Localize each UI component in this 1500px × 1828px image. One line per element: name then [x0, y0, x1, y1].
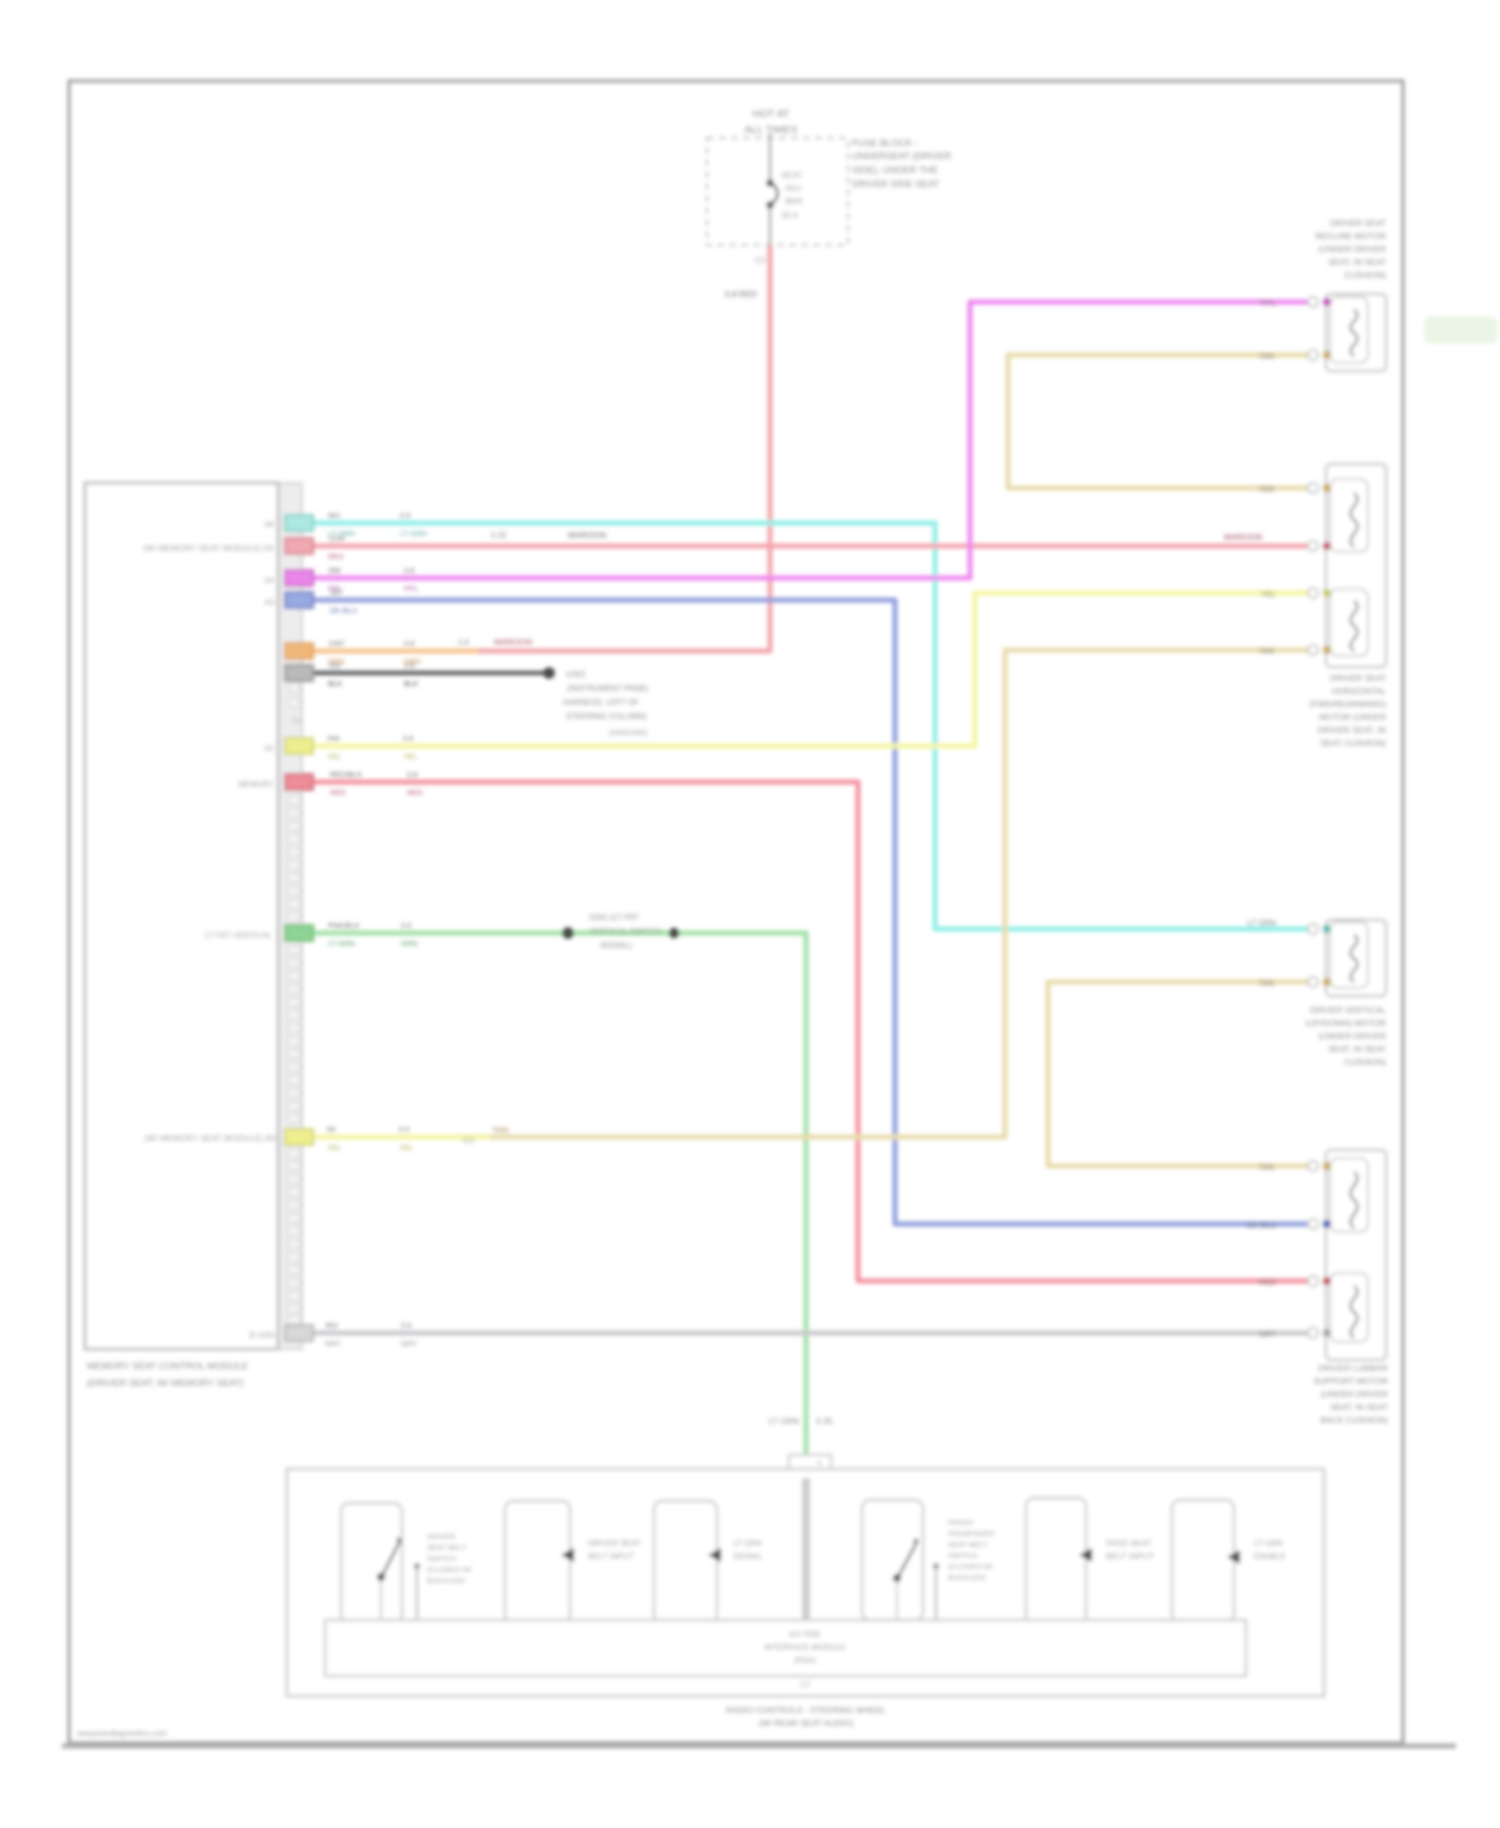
svg-text:941: 941 — [328, 511, 341, 520]
svg-text:A: A — [817, 1460, 822, 1467]
svg-text:TAN: TAN — [1259, 647, 1275, 656]
svg-text:MOTOR (UNDER: MOTOR (UNDER — [1319, 712, 1386, 722]
svg-text:BACK CUSHION): BACK CUSHION) — [1320, 1415, 1388, 1425]
svg-text:TAN: TAN — [1259, 485, 1275, 494]
svg-text:PASS SEAT: PASS SEAT — [1106, 1538, 1152, 1548]
svg-text:DRIVER: DRIVER — [427, 1532, 456, 1541]
svg-text:0.5: 0.5 — [399, 1125, 409, 1134]
svg-text:286: 286 — [328, 566, 341, 575]
svg-text:BELT INPUT: BELT INPUT — [588, 1552, 634, 1561]
svg-text:MAROON: MAROON — [568, 530, 606, 540]
svg-text:0.35: 0.35 — [491, 531, 507, 540]
svg-text:TAN: TAN — [1259, 979, 1275, 988]
svg-text:SWITCH: SWITCH — [948, 1551, 978, 1560]
svg-text:150: 150 — [328, 661, 341, 670]
svg-text:PNK/BLK: PNK/BLK — [328, 921, 360, 930]
svg-text:(UP/DOWN) MOTOR: (UP/DOWN) MOTOR — [1305, 1018, 1386, 1028]
svg-text:G302: G302 — [566, 670, 586, 679]
svg-text:0.8: 0.8 — [403, 734, 413, 743]
svg-text:C1: C1 — [292, 716, 302, 725]
svg-text:(UNDER DRIVER: (UNDER DRIVER — [1318, 1031, 1386, 1041]
svg-text:BLK: BLK — [328, 679, 342, 688]
svg-text:(CLOSED W/: (CLOSED W/ — [948, 1562, 994, 1571]
svg-text:1097: 1097 — [328, 639, 345, 648]
svg-text:HOT AT: HOT AT — [753, 108, 791, 120]
svg-text:BUCKLED): BUCKLED) — [427, 1576, 465, 1585]
svg-text:0.8: 0.8 — [404, 566, 414, 575]
svg-text:(RSA): (RSA) — [794, 1656, 816, 1665]
svg-text:SIGNAL: SIGNAL — [733, 1552, 763, 1561]
svg-text:FRONT: FRONT — [948, 1518, 974, 1527]
svg-text:LT GRN: LT GRN — [1247, 919, 1276, 928]
svg-text:SIGNAL): SIGNAL) — [600, 941, 632, 950]
svg-text:YEL: YEL — [1261, 590, 1277, 599]
svg-text:(W/ REAR SEAT AUDIO): (W/ REAR SEAT AUDIO) — [759, 1718, 854, 1728]
svg-text:0.35: 0.35 — [816, 1416, 833, 1426]
svg-text:93: 93 — [327, 1125, 335, 1134]
svg-text:PASSENGER: PASSENGER — [948, 1529, 995, 1538]
svg-text:MAROON: MAROON — [1224, 532, 1262, 542]
svg-text:(W/ MEMORY SEAT MODULE) A5: (W/ MEMORY SEAT MODULE) A5 — [143, 543, 274, 553]
svg-text:LT FRT VERTICAL: LT FRT VERTICAL — [205, 931, 273, 940]
svg-text:0.8: 0.8 — [404, 639, 414, 648]
svg-text:(INSTRUMENT PANEL: (INSTRUMENT PANEL — [567, 684, 650, 693]
svg-text:294: 294 — [327, 734, 340, 743]
svg-text:FUSE BLOCK -: FUSE BLOCK - — [852, 138, 918, 149]
svg-text:DRIVER VERTICAL: DRIVER VERTICAL — [1310, 1005, 1386, 1015]
svg-text:LT GRN: LT GRN — [328, 939, 355, 948]
svg-text:UNDERSEAT (DRIVER: UNDERSEAT (DRIVER — [852, 151, 952, 162]
svg-text:SEAT BELT: SEAT BELT — [427, 1543, 467, 1552]
svg-text:(CLOSED W/: (CLOSED W/ — [427, 1565, 473, 1574]
svg-text:DK BLU: DK BLU — [330, 606, 357, 615]
svg-text:C2: C2 — [755, 255, 766, 265]
svg-text:BKR: BKR — [785, 196, 802, 206]
svg-text:(DRIVER SEAT, W/ MEMORY SEAT): (DRIVER SEAT, W/ MEMORY SEAT) — [87, 1378, 244, 1389]
svg-text:353: 353 — [325, 1321, 338, 1330]
svg-text:GRY: GRY — [325, 1339, 341, 1348]
svg-text:0.8 RED: 0.8 RED — [725, 289, 757, 299]
svg-text:LT GRN: LT GRN — [733, 1539, 762, 1548]
svg-text:DK BLU: DK BLU — [1247, 1221, 1276, 1230]
svg-text:BLK: BLK — [404, 679, 418, 688]
svg-text:DRIVER SEAT: DRIVER SEAT — [588, 1539, 641, 1548]
svg-text:DRIVER LUMBAR: DRIVER LUMBAR — [1318, 1363, 1388, 1373]
svg-text:(W/ MEMORY SEAT MODULE) B2: (W/ MEMORY SEAT MODULE) B2 — [144, 1133, 276, 1143]
svg-text:B GRD: B GRD — [250, 1331, 276, 1340]
svg-text:CUSHION): CUSHION) — [1344, 1057, 1386, 1067]
svg-text:GRY: GRY — [1259, 1330, 1277, 1339]
svg-text:LT GRN: LT GRN — [400, 529, 427, 538]
svg-text:DRIVER SEAT: DRIVER SEAT — [1330, 673, 1386, 683]
svg-text:RED: RED — [328, 552, 344, 561]
svg-text:RED/BLK: RED/BLK — [330, 770, 362, 779]
svg-text:SWITCH: SWITCH — [427, 1554, 457, 1563]
svg-text:DRIVER SEAT: DRIVER SEAT — [1330, 218, 1386, 228]
svg-text:0.8: 0.8 — [407, 770, 417, 779]
svg-text:0.5: 0.5 — [400, 511, 410, 520]
svg-text:A3: A3 — [264, 598, 274, 607]
svg-text:DRIVER SIDE SEAT: DRIVER SIDE SEAT — [852, 179, 940, 190]
svg-text:1204: 1204 — [328, 534, 345, 543]
svg-text:SEAT: SEAT — [781, 170, 803, 180]
svg-text:YEL: YEL — [399, 1143, 413, 1152]
svg-text:(FWD/REARWARD): (FWD/REARWARD) — [1310, 699, 1387, 709]
svg-text:A4: A4 — [264, 576, 274, 585]
svg-text:ENABLE: ENABLE — [1254, 1552, 1286, 1561]
svg-text:INTERFACE MODULE: INTERFACE MODULE — [764, 1643, 845, 1652]
svg-text:SEAT CUSHION): SEAT CUSHION) — [1320, 738, 1386, 748]
svg-text:C2: C2 — [800, 1680, 811, 1689]
svg-text:YEL: YEL — [327, 1143, 341, 1152]
svg-text:LT GRN: LT GRN — [1254, 1539, 1283, 1548]
svg-text:RADIO CONTROLS - STEERING WHEE: RADIO CONTROLS - STEERING WHEEL — [726, 1705, 886, 1715]
svg-text:GRN: GRN — [401, 939, 418, 948]
svg-text:SEAT BELT: SEAT BELT — [948, 1540, 988, 1549]
svg-text:SUPPORT MOTOR: SUPPORT MOTOR — [1313, 1376, 1388, 1386]
svg-text:MAROON: MAROON — [494, 637, 532, 647]
svg-text:GRY: GRY — [401, 1339, 417, 1348]
svg-text:YEL: YEL — [327, 752, 341, 761]
svg-text:RED: RED — [407, 788, 423, 797]
svg-text:PPL: PPL — [404, 584, 418, 593]
svg-text:STEERING COLUMN): STEERING COLUMN) — [566, 712, 647, 721]
svg-text:SIDE), UNDER THE: SIDE), UNDER THE — [852, 165, 938, 176]
svg-text:TAN: TAN — [492, 1125, 508, 1135]
svg-text:RECLINE MOTOR: RECLINE MOTOR — [1315, 231, 1386, 241]
svg-text:MEMORY SEAT CONTROL MODULE: MEMORY SEAT CONTROL MODULE — [87, 1361, 248, 1372]
svg-text:MEMORY: MEMORY — [238, 780, 275, 789]
svg-text:0.5: 0.5 — [463, 1136, 475, 1145]
svg-text:A6: A6 — [264, 520, 274, 529]
svg-text:S341 (LT FRT: S341 (LT FRT — [589, 913, 639, 922]
svg-text:30 A: 30 A — [781, 210, 798, 220]
svg-text:BUCKLED): BUCKLED) — [948, 1573, 986, 1582]
svg-text:0.5: 0.5 — [401, 1321, 411, 1330]
svg-text:SEAT, IN SEAT: SEAT, IN SEAT — [1328, 257, 1386, 267]
svg-text:RED: RED — [1259, 1278, 1276, 1287]
svg-text:HORIZONTAL: HORIZONTAL — [1332, 686, 1386, 696]
svg-text:BELT INPUT: BELT INPUT — [1106, 1551, 1154, 1561]
svg-text:A/V RSE: A/V RSE — [789, 1630, 821, 1639]
svg-text:A2: A2 — [264, 744, 274, 753]
svg-text:ADJ: ADJ — [785, 183, 801, 193]
svg-text:DRIVER SEAT, IN: DRIVER SEAT, IN — [1318, 725, 1386, 735]
svg-text:easyautodiagnostics.com: easyautodiagnostics.com — [77, 1729, 167, 1738]
svg-text:RED: RED — [330, 788, 346, 797]
svg-text:YEL: YEL — [403, 752, 417, 761]
svg-text:TAN: TAN — [1259, 352, 1275, 361]
svg-text:LT GRN: LT GRN — [769, 1416, 799, 1426]
svg-text:HARNESS, LEFT OF: HARNESS, LEFT OF — [563, 698, 639, 707]
svg-text:CUSHION): CUSHION) — [1344, 270, 1386, 280]
svg-text:SEAT, IN SEAT: SEAT, IN SEAT — [1328, 1044, 1386, 1054]
svg-text:VERTICAL SWITCH: VERTICAL SWITCH — [589, 927, 662, 936]
svg-text:SEAT, IN SEAT: SEAT, IN SEAT — [1330, 1402, 1388, 1412]
svg-text:287: 287 — [330, 588, 343, 597]
svg-text:0.8: 0.8 — [458, 638, 470, 647]
svg-text:(GROUND): (GROUND) — [609, 728, 648, 737]
svg-text:0.8: 0.8 — [404, 661, 414, 670]
svg-text:TAN: TAN — [1259, 1163, 1275, 1172]
svg-text:0.5: 0.5 — [401, 921, 411, 930]
svg-text:(UNDER DRIVER: (UNDER DRIVER — [1320, 1389, 1388, 1399]
svg-text:PPL: PPL — [1261, 299, 1277, 308]
svg-text:(UNDER DRIVER: (UNDER DRIVER — [1318, 244, 1386, 254]
